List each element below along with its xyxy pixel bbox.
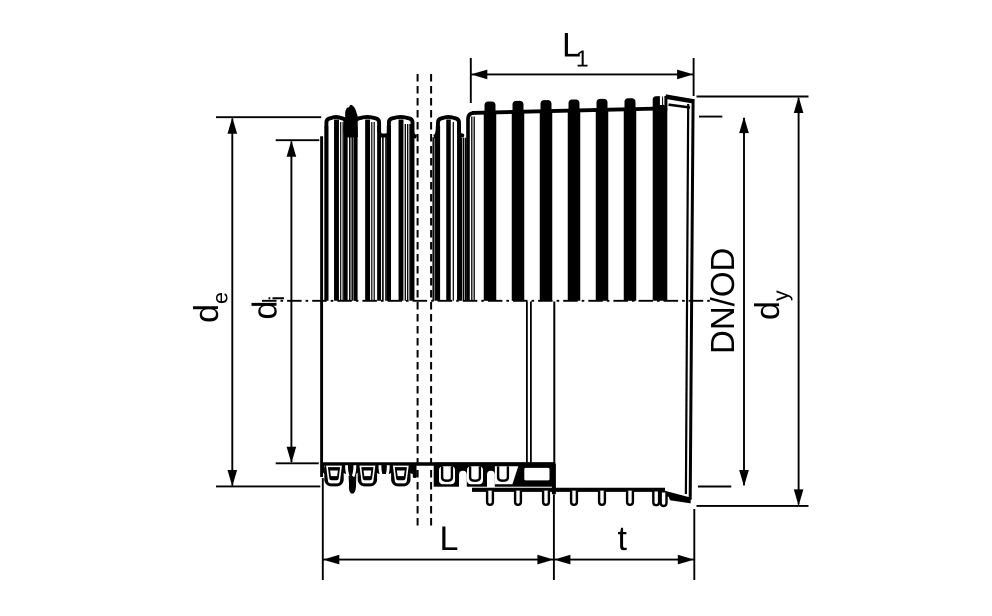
- svg-text:DN/OD: DN/OD: [704, 248, 741, 354]
- svg-text:t: t: [618, 520, 628, 558]
- svg-text:L: L: [440, 520, 459, 558]
